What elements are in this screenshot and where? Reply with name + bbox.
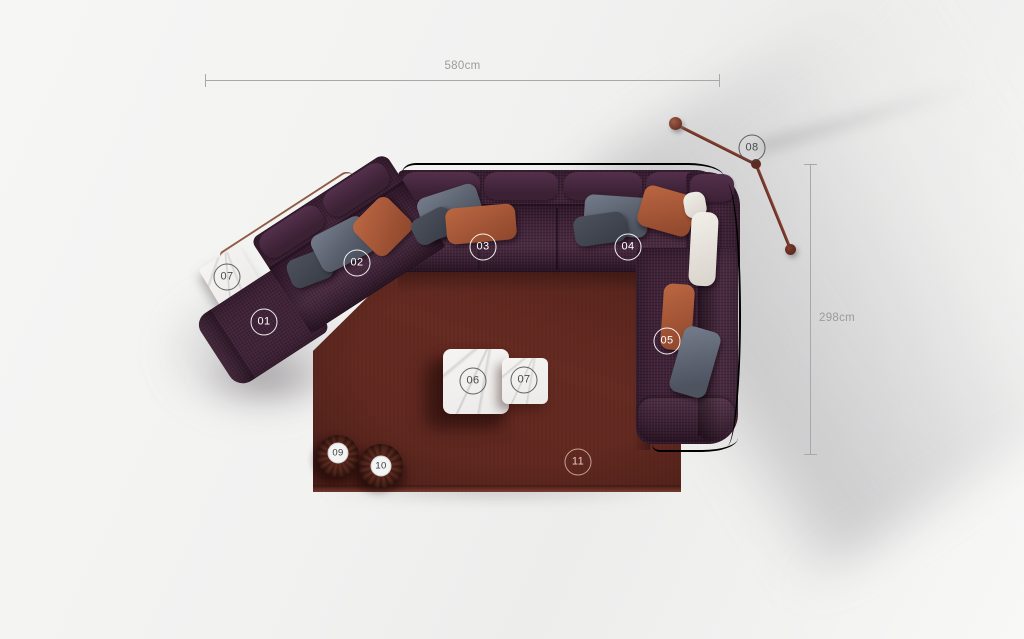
sofa-frame xyxy=(402,163,724,177)
marker-06[interactable]: 06 xyxy=(460,368,487,395)
rug-fold-edge xyxy=(313,485,681,492)
planner-canvas: 580cm 298cm 01 02 03 04 05 06 07 07 08 0… xyxy=(0,0,1024,639)
marker-07-center[interactable]: 07 xyxy=(511,367,538,394)
dimension-label-width: 580cm xyxy=(205,60,720,72)
dimension-tick xyxy=(804,164,817,165)
dimension-line-horizontal: 580cm xyxy=(205,60,720,90)
dimension-line xyxy=(810,164,811,455)
marker-07-left[interactable]: 07 xyxy=(214,264,241,291)
marker-03[interactable]: 03 xyxy=(470,234,497,261)
marker-11[interactable]: 11 xyxy=(565,449,592,476)
marker-09[interactable]: 09 xyxy=(328,443,349,464)
dimension-tick xyxy=(804,454,817,455)
dimension-label-depth: 298cm xyxy=(819,312,855,324)
marker-10[interactable]: 10 xyxy=(371,456,392,477)
marker-05[interactable]: 05 xyxy=(654,328,681,355)
floor-lamp-base xyxy=(785,244,796,255)
dimension-line-vertical: 298cm xyxy=(798,164,868,456)
marker-04[interactable]: 04 xyxy=(615,234,642,261)
dimension-line xyxy=(205,80,720,81)
floor-lamp-head[interactable] xyxy=(669,117,682,130)
seam xyxy=(556,208,558,270)
dimension-tick xyxy=(719,74,720,87)
marker-08[interactable]: 08 xyxy=(739,135,766,162)
dimension-tick xyxy=(205,74,206,87)
marker-02[interactable]: 02 xyxy=(344,250,371,277)
pillow xyxy=(688,211,719,286)
marker-01[interactable]: 01 xyxy=(251,309,278,336)
